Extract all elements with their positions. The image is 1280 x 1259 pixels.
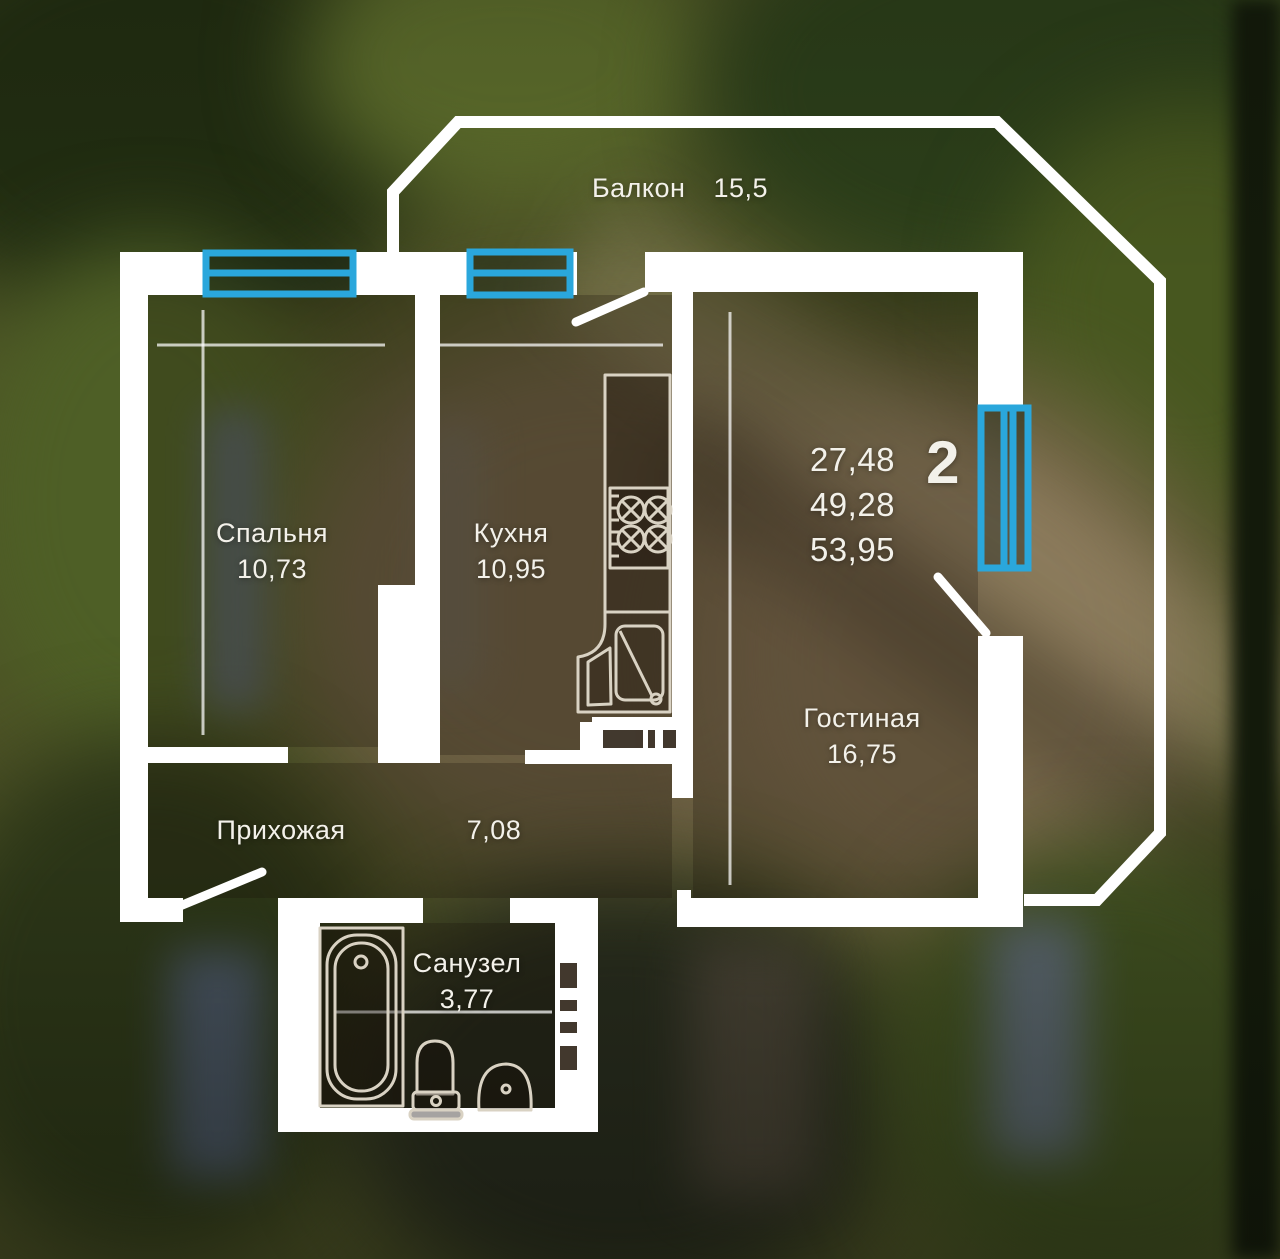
wall-top-living: [645, 252, 1023, 292]
toilet-bowl: [417, 1041, 453, 1094]
balcony-label: Балкон: [592, 170, 686, 206]
kitchen-label: Кухня: [411, 515, 611, 551]
wall-top-a: [120, 252, 206, 295]
wall-top-b: [353, 252, 472, 295]
wall-pier: [378, 585, 415, 763]
floorplan-screenshot: Балкон 15,5 Спальня 10,73 Кухня 10,95 27…: [0, 0, 1280, 1259]
kitchen-wall-niche-3: [663, 730, 676, 748]
kitchen-wall-niche-2: [648, 730, 655, 748]
wall-bottom-jamb: [677, 890, 691, 900]
bathroom-label-block: Санузел 3,77: [367, 945, 567, 1017]
kitchen-label-block: Кухня 10,95: [411, 515, 611, 587]
kitchen-wall-niche-1: [603, 730, 643, 748]
summary-total-area: 53,95: [760, 527, 945, 572]
bedroom-label: Спальня: [172, 515, 372, 551]
balcony-area: 15,5: [713, 170, 768, 206]
wall-hallway: [525, 750, 592, 764]
washbasin: [479, 1064, 531, 1110]
wall-right-upper: [978, 292, 1023, 410]
hallway-label: Прихожая: [181, 812, 381, 848]
wall-bottom-left: [120, 898, 183, 922]
wall-left: [120, 252, 148, 922]
wall-right-lower: [978, 636, 1023, 927]
balcony-label-row: Балкон 15,5: [530, 170, 830, 206]
living-area: 16,75: [762, 736, 962, 772]
bathroom-label: Санузел: [367, 945, 567, 981]
rooms-count: 2: [907, 432, 979, 494]
hallway-area: 7,08: [444, 812, 544, 848]
shaft-notch-3: [560, 1022, 577, 1033]
toilet-base: [413, 1092, 459, 1110]
shaft-notch-4: [560, 1046, 577, 1070]
wall-bedroom-bottom: [148, 747, 288, 763]
living-label-block: Гостиная 16,75: [762, 700, 962, 772]
bedroom-area: 10,73: [172, 551, 372, 587]
toilet-skirt: [410, 1110, 462, 1119]
wall-bath-left: [278, 898, 320, 1108]
wall-bottom-living: [677, 898, 1023, 927]
bedroom-label-block: Спальня 10,73: [172, 515, 372, 587]
living-floor: [693, 292, 978, 898]
bathroom-area: 3,77: [367, 981, 567, 1017]
living-label: Гостиная: [762, 700, 962, 736]
kitchen-area: 10,95: [411, 551, 611, 587]
